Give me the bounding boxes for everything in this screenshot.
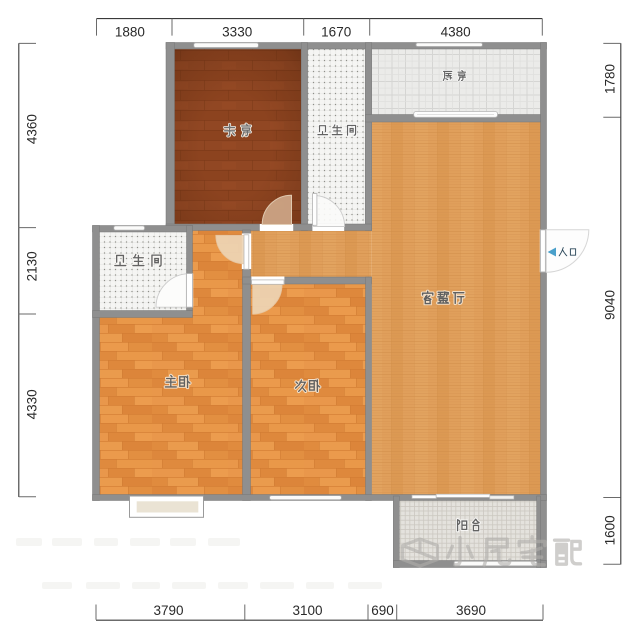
svg-text:3690: 3690 (456, 603, 486, 618)
svg-text:1880: 1880 (115, 24, 145, 39)
svg-text:2130: 2130 (25, 251, 40, 281)
svg-text:3790: 3790 (153, 603, 183, 618)
svg-text:3100: 3100 (292, 603, 322, 618)
svg-text:3330: 3330 (222, 24, 252, 39)
svg-text:4330: 4330 (25, 389, 40, 419)
svg-text:1780: 1780 (603, 64, 618, 94)
svg-text:1670: 1670 (321, 24, 351, 39)
svg-text:9040: 9040 (603, 290, 618, 320)
svg-text:4360: 4360 (25, 114, 40, 144)
svg-text:1600: 1600 (603, 515, 618, 545)
svg-text:690: 690 (371, 603, 394, 618)
svg-text:4380: 4380 (441, 24, 471, 39)
